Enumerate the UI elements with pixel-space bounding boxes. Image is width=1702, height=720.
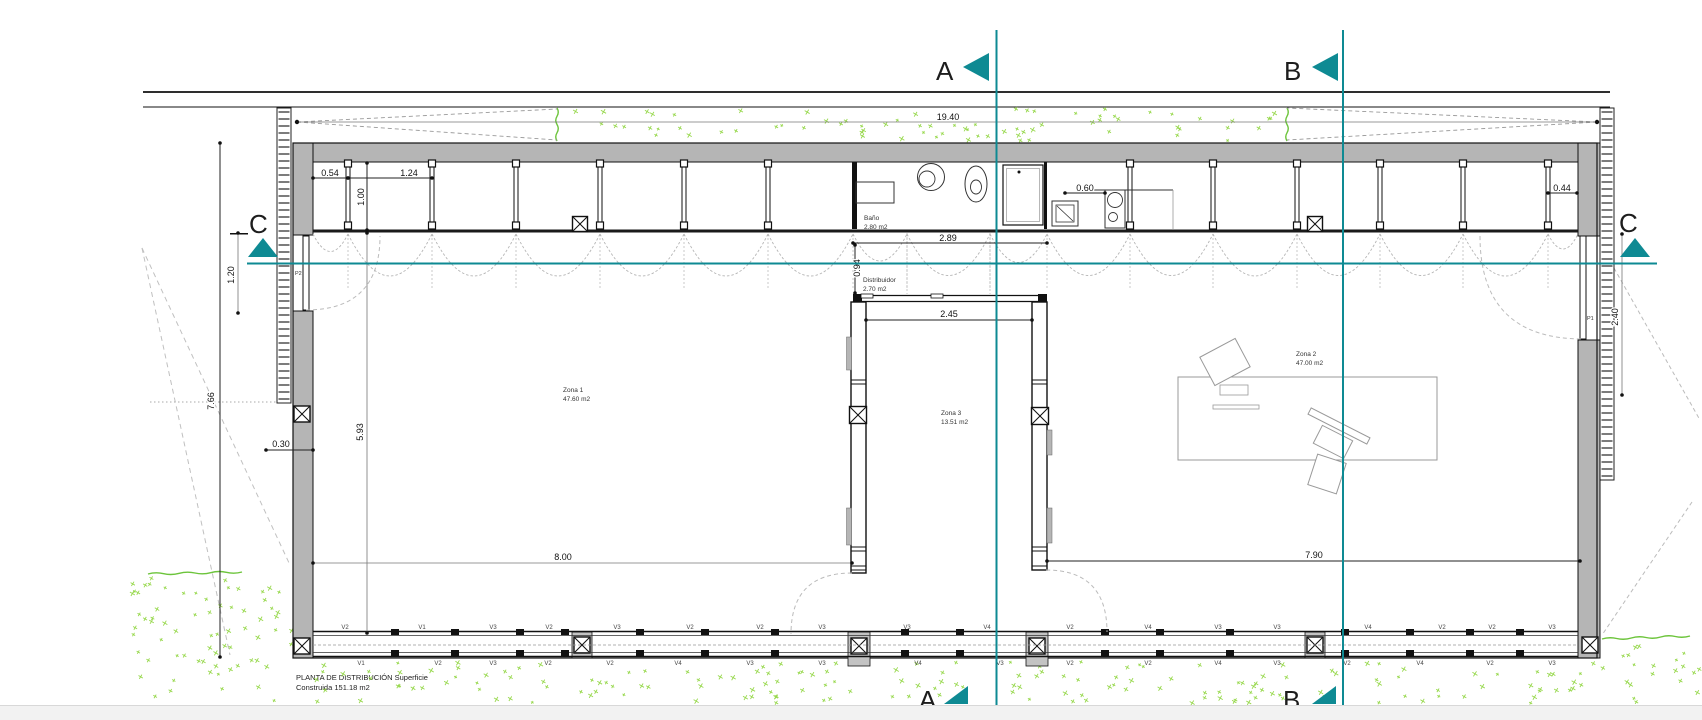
speckle [627,671,630,674]
speckle [986,134,990,138]
speckle [798,671,801,674]
dimension-label: 2.89 [939,233,957,243]
window-frame-tick [1226,629,1234,635]
speckle [139,675,143,679]
speckle [1028,698,1031,701]
window-label: V2 [1486,661,1494,667]
window-frame-tick [636,629,644,635]
porch-post-cap [1377,222,1384,229]
speckle [444,680,449,685]
speckle [208,670,212,674]
speckle [396,662,399,665]
speckle [315,700,319,704]
corridor-west-wall [851,302,866,573]
speckle [1011,690,1015,694]
speckle [226,629,231,634]
speckle [1697,667,1701,671]
dimension-label: 1.20 [226,266,236,284]
window-frame-tick [391,650,399,656]
stove-burner [1108,193,1123,208]
speckle [961,685,964,688]
dimension-label: 0.60 [1076,183,1094,193]
speckle [1568,688,1572,692]
speckle [802,126,806,130]
speckle [1375,678,1379,682]
window-frame-tick [771,629,779,635]
speckle [673,113,676,116]
speckle [1016,133,1021,138]
speckle [1169,677,1173,681]
chair [1200,338,1250,385]
speckle [1099,114,1102,117]
window-label: V2 [545,625,553,631]
speckle [1528,683,1533,688]
speckle [1403,695,1406,698]
speckle [718,675,723,680]
speckle [1016,127,1019,130]
speckle [1071,700,1075,704]
window-frame-tick [1406,650,1414,656]
speckle [517,666,521,670]
speckle [148,582,152,586]
speckle [1203,691,1207,695]
dim-dot [1620,232,1624,236]
west-wall-lower [293,311,313,658]
speckle [1218,690,1222,694]
window-label: V3 [613,625,621,631]
speckle [1027,138,1031,142]
window-frame-tick [1516,629,1524,635]
room-zona2-area: 47.00 m2 [1296,360,1323,367]
speckle [429,668,434,673]
window-frame-tick [901,650,909,656]
speckle [678,126,682,130]
porch-post [682,166,686,224]
speckle [697,678,700,681]
speckle [484,673,489,678]
speckle [1175,133,1179,137]
speckle [761,665,765,669]
porch-post [1546,166,1550,224]
speckle [214,664,218,668]
speckle [1226,126,1230,130]
speckle [273,699,276,702]
porch-post-cap [429,222,436,229]
window-label: V2 [1438,625,1446,631]
speckle [1074,112,1077,115]
speckle [131,582,135,586]
speckle [1014,107,1018,111]
dim-dot [295,120,299,124]
speckle [263,598,267,602]
corridor-east-wall [1032,302,1047,570]
speckle [643,669,646,672]
wall-window-strip [1047,508,1052,543]
speckle [1532,695,1537,700]
deck-strip-left [277,108,291,403]
grass-band-left-edge [556,108,559,141]
gallery-swing-arc [1213,234,1297,276]
toilet-bowl [971,180,982,194]
grass-band-right-edge [1286,108,1289,141]
dim-dot [264,448,268,452]
speckle [1651,672,1655,676]
gallery-swing-arc [1047,234,1130,276]
speckle [321,663,326,668]
door-p2-leaf [303,236,309,310]
speckle [913,112,918,117]
speckle [278,591,281,594]
door-p1-swing-arc [1480,236,1583,339]
wall-window-strip [1047,430,1052,455]
speckle [1591,661,1595,665]
speckle [976,135,979,138]
window-label: V4 [1144,625,1152,631]
window-frame-tick [701,629,709,635]
terrain-slope-line [142,248,290,565]
speckle [276,610,281,615]
speckle [1040,123,1044,127]
speckle [456,666,460,670]
speckle [242,609,246,613]
window-frame-tick [516,629,524,635]
dimension-label: 7.66 [206,392,216,410]
door-p2-swing-arc [306,236,380,310]
window-glyph [931,294,943,298]
window-label: V3 [996,661,1004,667]
speckle [780,124,783,127]
speckle [646,685,650,689]
room-distribuidor-area: 2.70 m2 [863,286,887,293]
window-frame-tick [561,629,569,635]
window-frame-tick [391,629,399,635]
dim-dot [1620,393,1624,397]
speckle [143,617,147,621]
speckle [227,586,230,589]
gallery-swing-arc [1380,234,1463,276]
window-label: V4 [914,661,922,667]
room-bano-name: Baño [864,215,880,222]
speckle [1249,691,1252,694]
dimension-label: 7.90 [1305,550,1323,560]
keyboard [1220,385,1248,395]
speckle [824,684,827,687]
dimension-label: 5.93 [355,423,365,441]
washbasin [918,164,945,191]
porch-post-cap [1460,160,1467,167]
speckle [755,669,760,674]
speckle [213,651,218,656]
speckle [720,130,724,134]
speckle [420,686,424,690]
section-a-top-label: A [936,56,954,86]
porch-post [346,166,350,224]
speckle [1637,644,1641,648]
porch-post-cap [1545,222,1552,229]
speckle [1107,130,1111,134]
speckle [143,583,147,587]
speckle [1285,675,1289,679]
gallery-swing-arc [990,234,1047,263]
speckle [1240,681,1244,685]
speckle [208,646,213,651]
window-glyph [861,294,873,298]
speckle [1149,111,1152,114]
section-b-top-label: B [1284,56,1301,86]
speckle [805,110,810,115]
speckle [1261,674,1266,679]
dim-dot [850,561,854,565]
speckle [1084,698,1088,702]
speckle [160,638,163,641]
speckle [1040,670,1044,674]
dim-dot [853,291,857,295]
speckle [590,679,593,682]
gallery-swing-arc [432,234,516,276]
section-b-bottom-marker-triangle [1312,686,1336,704]
speckle [205,598,208,601]
gallery-swing-arc [684,234,768,276]
room-distribuidor-name: Distribuidor [863,277,897,284]
speckle [162,621,167,626]
porch-post [766,166,770,224]
dimension-label: 0.30 [272,439,290,449]
speckle [928,124,932,128]
window-label: V3 [1548,661,1556,667]
speckle [201,659,206,664]
window-frame-tick [956,650,964,656]
stove-burner [1109,213,1118,222]
dimension-label: 0.94 [852,259,862,277]
speckle [588,693,593,698]
terrain-slope-line [1602,502,1692,635]
speckle [918,124,921,127]
porch-post-cap [1294,222,1301,229]
speckle [922,131,925,134]
speckle [164,586,167,589]
speckle [824,119,829,124]
speckle [1012,683,1017,688]
speckle [1017,673,1022,678]
window-label: V3 [489,661,497,667]
speckle [1019,139,1023,143]
speckle [941,671,945,675]
speckle [509,675,513,679]
room-zona2-name: Zona 2 [1296,351,1317,358]
speckle [289,642,293,646]
speckle [743,695,748,700]
porch-post-cap [1210,222,1217,229]
speckle [763,681,768,686]
window-label: V2 [434,661,442,667]
speckle [1681,664,1685,668]
dim-dot [365,161,369,165]
speckle [1034,674,1039,679]
speckle [176,654,179,657]
speckle [622,125,626,129]
section-a-marker-triangle [963,53,989,81]
speckle [810,672,815,677]
dim-dot [853,243,857,247]
window-frame-tick [956,629,964,635]
speckle [146,658,150,662]
speckle [1397,676,1400,679]
speckle [538,662,543,667]
speckle [1113,115,1116,118]
desk [1178,377,1437,460]
gallery-swing-arc [1130,234,1213,276]
speckle [1377,681,1382,686]
speckle [1017,685,1022,690]
speckle [230,606,233,609]
speckle [839,122,843,126]
speckle [258,617,263,622]
window-frame-tick [1516,650,1524,656]
porch-post-cap [1127,160,1134,167]
speckle [1695,690,1700,695]
speckle [954,682,958,686]
speckle [579,690,582,693]
speckle [833,680,836,683]
terrain-wavy-line [148,571,242,574]
speckle [800,670,803,673]
window-frame-tick [1406,629,1414,635]
window-frame-tick [636,650,644,656]
window-label: V3 [903,625,911,631]
dim-dot [864,318,868,322]
speckle [1112,683,1115,686]
porch-post [1295,166,1299,224]
gallery-swing-arc [516,234,600,276]
speckle [573,109,578,114]
speckle [1554,688,1559,693]
speckle [150,576,154,580]
dim-dot [1030,318,1034,322]
speckle [1260,688,1264,692]
speckle [1198,117,1202,121]
porch-post-cap [681,222,688,229]
speckle [455,660,460,665]
speckle [476,682,479,685]
porch-post-cap [513,222,520,229]
room-zona3-name: Zona 3 [941,410,962,417]
speckle [899,136,904,141]
porch-post-cap [345,160,352,167]
window-bottom-bar [0,705,1702,720]
speckle [1237,681,1240,684]
window-label: V3 [1214,625,1222,631]
speckle [1203,696,1207,700]
speckle [750,695,755,700]
speckle [1538,689,1541,692]
porch-post-cap [1210,160,1217,167]
speckle [731,675,736,680]
speckle [454,676,457,679]
dim-dot [236,311,240,315]
speckle [734,129,738,133]
speckle [137,650,140,653]
speckle [848,689,852,693]
speckle [601,109,606,114]
section-b-marker-triangle [1312,53,1338,81]
speckle [1230,119,1235,124]
speckle [834,661,838,665]
terrain-wavy-line [1602,636,1690,639]
speckle [169,689,173,693]
speckle [1138,663,1141,666]
speckle [1601,666,1605,670]
roof-slope-line [1287,108,1597,140]
speckle [894,667,899,672]
dim-dot [346,176,350,180]
plan-title-line2: Construida 151.18 m2 [296,683,370,692]
speckle [1480,684,1485,689]
door-p1-leaf [1580,236,1586,339]
speckle [545,685,548,688]
speckle [657,128,660,131]
porch-post-cap [1127,222,1134,229]
speckle [136,591,140,595]
speckle [256,635,261,640]
window-label: V2 [606,661,614,667]
window-frame-tick [516,650,524,656]
window-label: V3 [1548,625,1556,631]
dim-dot [1045,559,1049,563]
speckle [1496,673,1499,676]
speckle [1270,691,1275,696]
room-zona1-name: Zona 1 [563,387,584,394]
wall-window-strip [847,337,852,370]
speckle [639,684,644,689]
floor-plan-canvas: A B A B C C PLANTA DE DISTRIBUCIÓN Super… [0,0,1702,720]
porch-post-cap [765,160,772,167]
speckle [766,671,770,675]
floor-plan-drawing: A B A B C C PLANTA DE DISTRIBUCIÓN Super… [0,0,1702,720]
dim-dot [1546,191,1550,195]
speckle [182,592,185,595]
window-frame-tick [451,650,459,656]
speckle [220,687,224,691]
speckle [478,688,481,691]
speckle [243,626,247,630]
speckle [800,688,804,692]
speckle [210,634,213,637]
speckle [1103,107,1107,111]
dim-dot [311,448,315,452]
porch-post [598,166,602,224]
speckle [1679,679,1683,683]
roof-slope-line [297,109,557,140]
dim-dot [1103,191,1107,195]
speckle [358,698,363,703]
speckle [411,686,416,691]
speckle [1025,109,1029,113]
window-label: V2 [1343,661,1351,667]
speckle [1002,129,1007,134]
speckle [1579,672,1582,675]
speckle [939,679,944,684]
speckle [228,667,232,671]
speckle [1272,111,1277,116]
porch-post-cap [765,222,772,229]
speckle [1190,701,1195,706]
speckle [953,124,956,127]
speckle [1401,667,1406,672]
speckle [687,133,692,138]
porch-post [1461,166,1465,224]
speckle [229,646,233,650]
speckle [1572,680,1577,685]
